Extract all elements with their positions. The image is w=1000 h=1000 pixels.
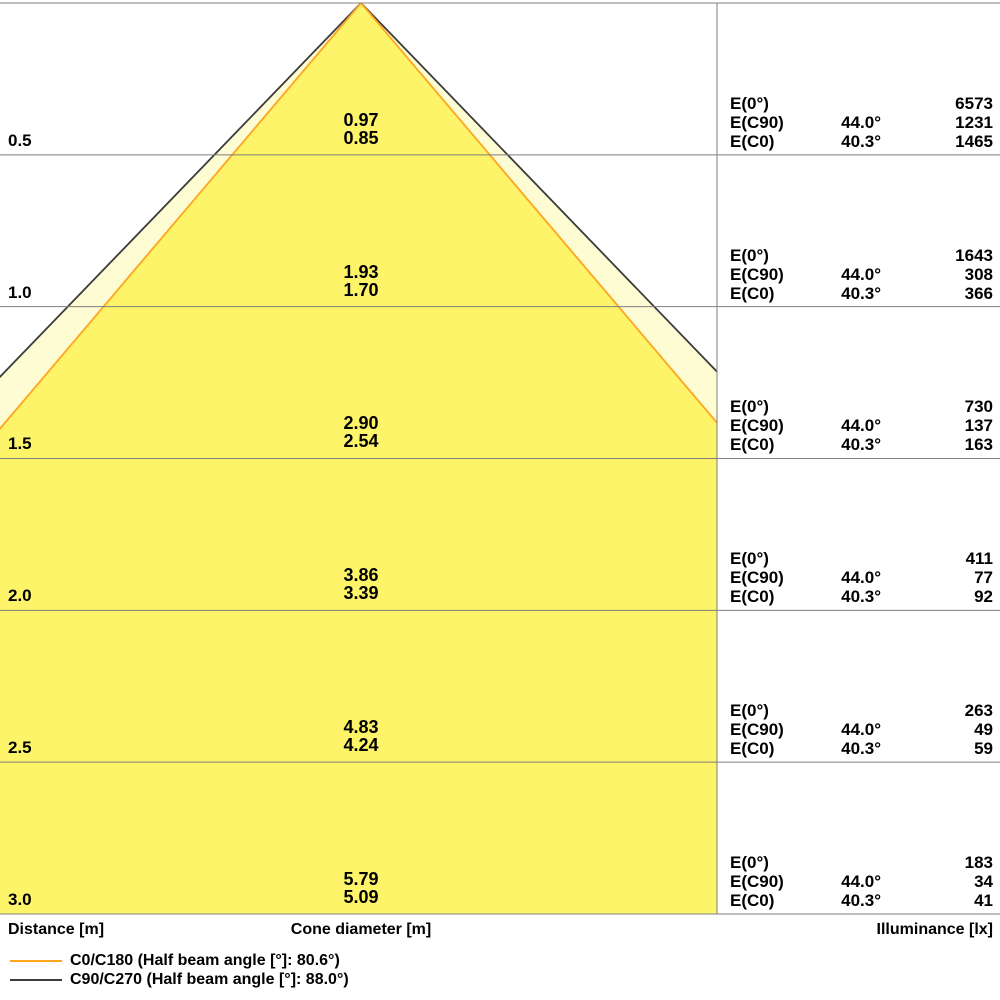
illuminance-row: E(0°)263 (730, 701, 993, 720)
cone-diameter-axis-label: Cone diameter [m] (161, 921, 561, 939)
e-label: E(C90) (730, 113, 822, 132)
e-value: 59 (881, 739, 993, 758)
e-label: E(0°) (730, 246, 822, 265)
cone-diameter-c90: 4.83 (261, 719, 461, 737)
illuminance-row: E(C0)40.3°59 (730, 739, 993, 758)
e-label: E(0°) (730, 397, 822, 416)
cone-diameter-values: 1.93 1.70 (261, 264, 461, 299)
illuminance-block: E(0°)6573 E(C90)44.0°1231 E(C0)40.3°1465 (730, 94, 993, 151)
cone-diameter-values: 4.83 4.24 (261, 719, 461, 754)
illuminance-row: E(0°)6573 (730, 94, 993, 113)
distance-label: 2.0 (8, 586, 32, 606)
cone-diameter-c0: 1.70 (261, 282, 461, 300)
e-angle: 40.3° (822, 132, 881, 151)
illuminance-block: E(0°)730 E(C90)44.0°137 E(C0)40.3°163 (730, 397, 993, 454)
e-angle: 40.3° (822, 435, 881, 454)
e-value: 92 (881, 587, 993, 606)
distance-label: 1.5 (8, 434, 32, 454)
illuminance-row: E(C90)44.0°1231 (730, 113, 993, 132)
e-value: 411 (881, 549, 993, 568)
distance-label: 1.0 (8, 283, 32, 303)
e-label: E(C90) (730, 872, 822, 891)
illuminance-row: E(C0)40.3°41 (730, 891, 993, 910)
cone-diameter-values: 2.90 2.54 (261, 415, 461, 450)
e-value: 1465 (881, 132, 993, 151)
e-value: 730 (881, 397, 993, 416)
e-value: 34 (881, 872, 993, 891)
legend-row-c90: C90/C270 (Half beam angle [°]: 88.0°) (10, 970, 349, 989)
illuminance-row: E(C0)40.3°366 (730, 284, 993, 303)
distance-label: 3.0 (8, 890, 32, 910)
cone-diagram: 0.5 0.97 0.85 E(0°)6573 E(C90)44.0°1231 … (0, 0, 1000, 1000)
e-angle (822, 397, 881, 416)
e-value: 41 (881, 891, 993, 910)
cone-diameter-c0: 0.85 (261, 130, 461, 148)
legend-label-c0: C0/C180 (Half beam angle [°]: 80.6°) (70, 951, 340, 970)
cone-diameter-c90: 5.79 (261, 871, 461, 889)
cone-diameter-c0: 2.54 (261, 433, 461, 451)
illuminance-block: E(0°)411 E(C90)44.0°77 E(C0)40.3°92 (730, 549, 993, 606)
illuminance-row: E(C90)44.0°49 (730, 720, 993, 739)
e-angle: 40.3° (822, 587, 881, 606)
e-angle: 40.3° (822, 284, 881, 303)
cone-diameter-values: 3.86 3.39 (261, 567, 461, 602)
e-angle: 44.0° (822, 568, 881, 587)
illuminance-block: E(0°)183 E(C90)44.0°34 E(C0)40.3°41 (730, 853, 993, 910)
illuminance-row: E(C0)40.3°163 (730, 435, 993, 454)
e-angle: 44.0° (822, 720, 881, 739)
e-value: 1231 (881, 113, 993, 132)
e-label: E(C90) (730, 416, 822, 435)
e-value: 183 (881, 853, 993, 872)
e-label: E(0°) (730, 701, 822, 720)
e-label: E(0°) (730, 853, 822, 872)
e-value: 366 (881, 284, 993, 303)
e-angle: 40.3° (822, 891, 881, 910)
cone-diameter-c90: 1.93 (261, 264, 461, 282)
e-label: E(C0) (730, 284, 822, 303)
e-angle (822, 94, 881, 113)
e-value: 77 (881, 568, 993, 587)
e-value: 137 (881, 416, 993, 435)
illuminance-row: E(0°)183 (730, 853, 993, 872)
e-value: 308 (881, 265, 993, 284)
illuminance-row: E(C90)44.0°137 (730, 416, 993, 435)
cone-diameter-c90: 0.97 (261, 112, 461, 130)
illuminance-row: E(C90)44.0°308 (730, 265, 993, 284)
cone-diameter-c90: 3.86 (261, 567, 461, 585)
e-label: E(C0) (730, 132, 822, 151)
illuminance-block: E(0°)263 E(C90)44.0°49 E(C0)40.3°59 (730, 701, 993, 758)
e-label: E(C0) (730, 739, 822, 758)
e-angle (822, 701, 881, 720)
cone-diameter-c90: 2.90 (261, 415, 461, 433)
illuminance-row: E(C0)40.3°1465 (730, 132, 993, 151)
legend-label-c90: C90/C270 (Half beam angle [°]: 88.0°) (70, 970, 349, 989)
e-angle: 44.0° (822, 872, 881, 891)
illuminance-axis-label: Illuminance [lx] (877, 921, 993, 939)
e-angle: 40.3° (822, 739, 881, 758)
e-label: E(0°) (730, 549, 822, 568)
e-label: E(C0) (730, 435, 822, 454)
e-value: 263 (881, 701, 993, 720)
e-label: E(C90) (730, 720, 822, 739)
e-value: 1643 (881, 246, 993, 265)
e-value: 49 (881, 720, 993, 739)
e-angle: 44.0° (822, 265, 881, 284)
cone-diameter-c0: 5.09 (261, 889, 461, 907)
e-angle: 44.0° (822, 113, 881, 132)
distance-label: 0.5 (8, 131, 32, 151)
e-angle: 44.0° (822, 416, 881, 435)
cone-diameter-c0: 4.24 (261, 737, 461, 755)
e-angle (822, 549, 881, 568)
cone-diameter-c0: 3.39 (261, 585, 461, 603)
e-label: E(C0) (730, 891, 822, 910)
illuminance-row: E(C90)44.0°77 (730, 568, 993, 587)
e-label: E(C0) (730, 587, 822, 606)
e-value: 6573 (881, 94, 993, 113)
illuminance-block: E(0°)1643 E(C90)44.0°308 E(C0)40.3°366 (730, 246, 993, 303)
e-label: E(C90) (730, 265, 822, 284)
illuminance-row: E(0°)1643 (730, 246, 993, 265)
distance-axis-label: Distance [m] (8, 921, 104, 939)
illuminance-row: E(0°)411 (730, 549, 993, 568)
e-label: E(0°) (730, 94, 822, 113)
c90-line-swatch (10, 979, 62, 981)
e-angle (822, 853, 881, 872)
legend-row-c0: C0/C180 (Half beam angle [°]: 80.6°) (10, 951, 349, 970)
e-angle (822, 246, 881, 265)
c0-line-swatch (10, 960, 62, 962)
distance-label: 2.5 (8, 738, 32, 758)
cone-diameter-values: 5.79 5.09 (261, 871, 461, 906)
illuminance-row: E(C90)44.0°34 (730, 872, 993, 891)
e-label: E(C90) (730, 568, 822, 587)
illuminance-row: E(0°)730 (730, 397, 993, 416)
legend: C0/C180 (Half beam angle [°]: 80.6°) C90… (10, 951, 349, 989)
cone-diameter-values: 0.97 0.85 (261, 112, 461, 147)
illuminance-row: E(C0)40.3°92 (730, 587, 993, 606)
e-value: 163 (881, 435, 993, 454)
